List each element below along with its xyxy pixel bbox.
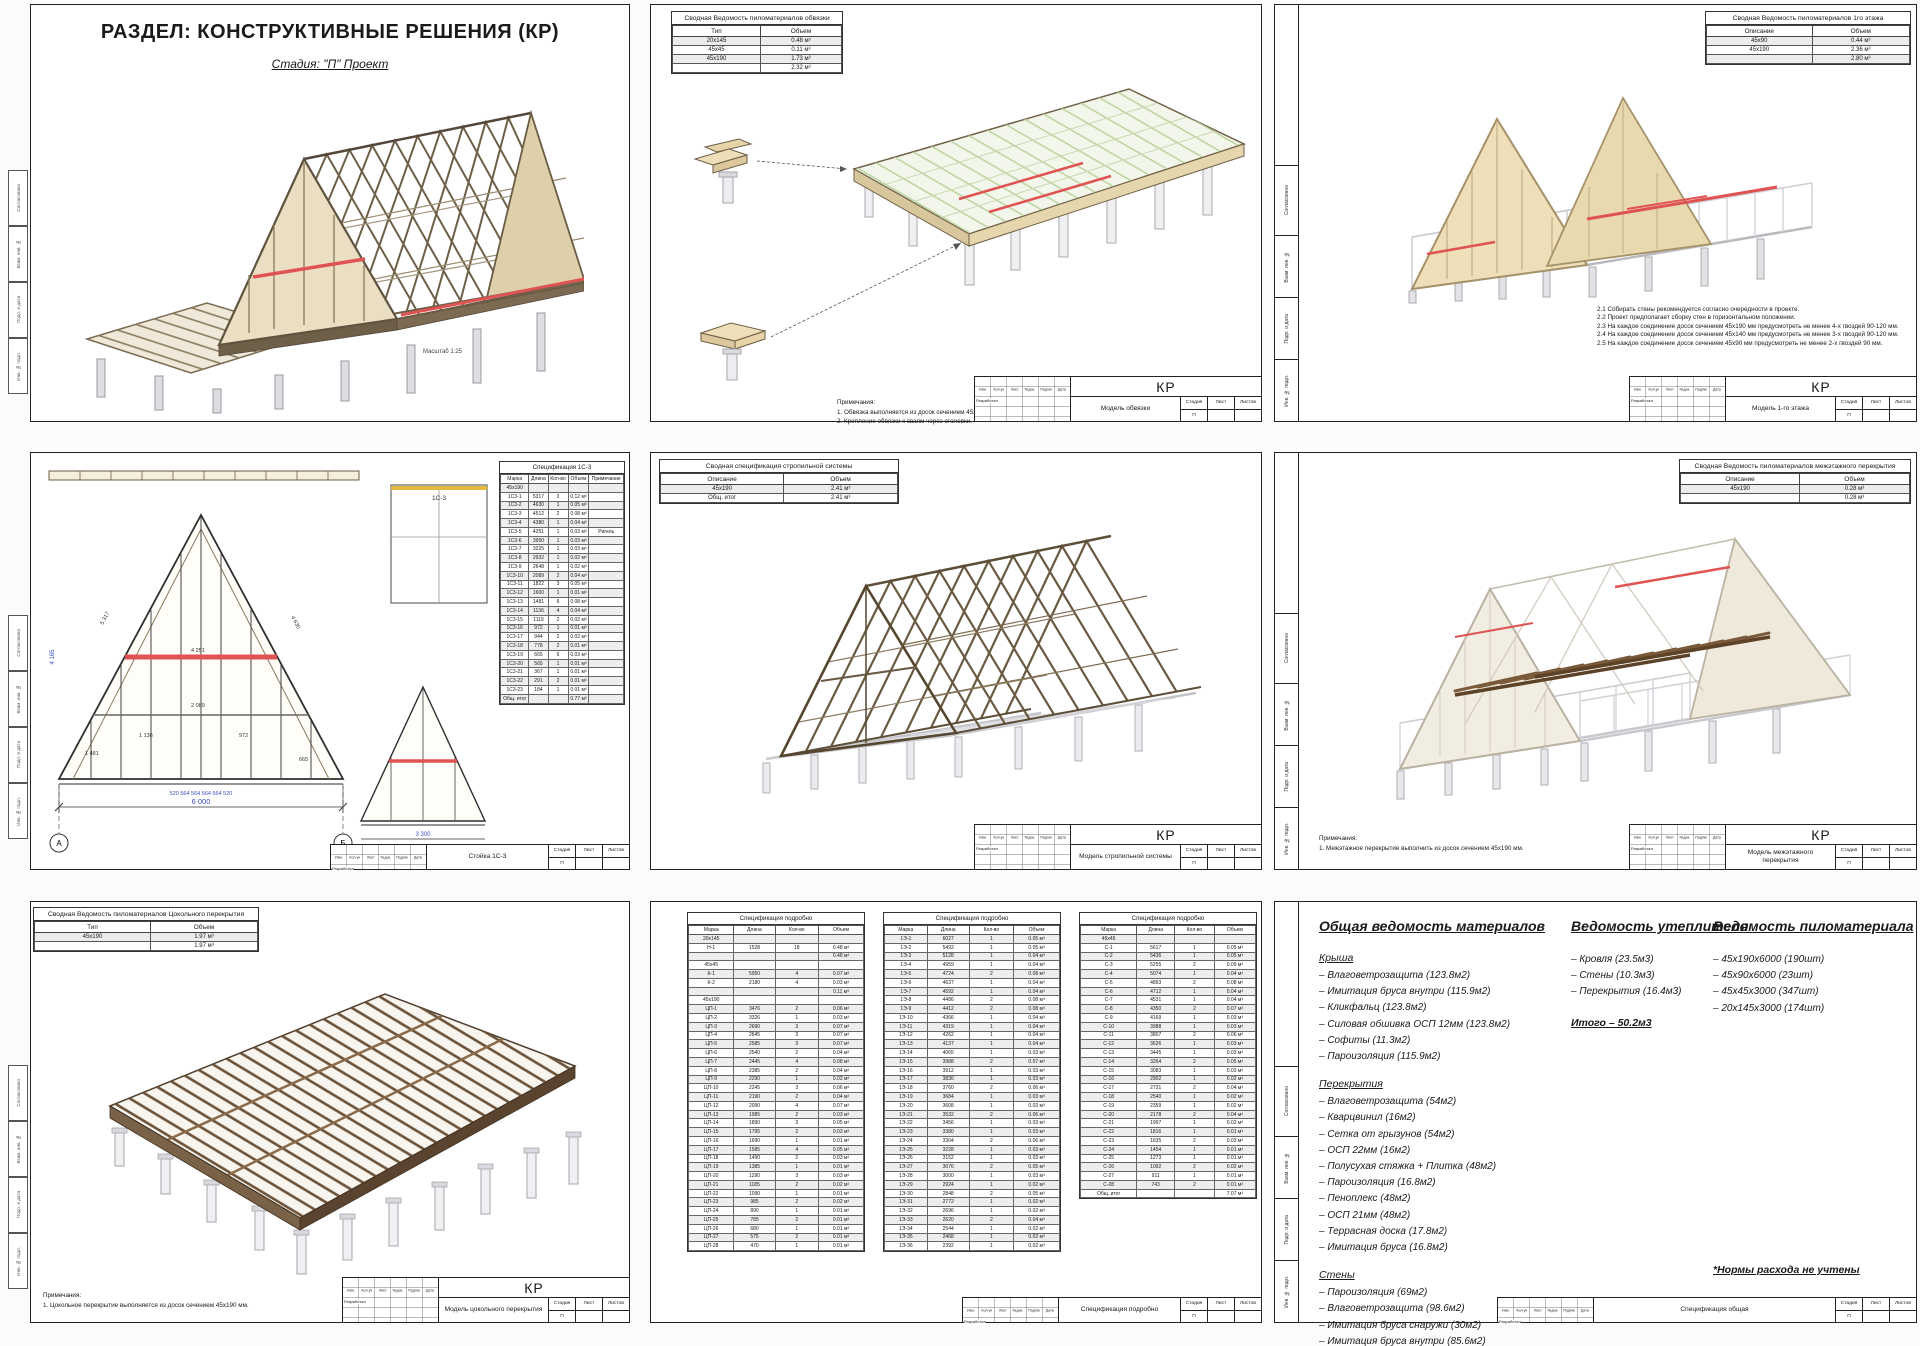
table-cell: 2: [548, 492, 568, 501]
table-cell: [1175, 935, 1215, 944]
table-cell: 45х190: [501, 484, 529, 493]
table-cell: 0.01 м³: [568, 677, 589, 686]
table-cell: [548, 694, 568, 703]
table-cell: 4366: [927, 1014, 969, 1023]
table-cell: К-1: [689, 970, 734, 979]
table-row: 1Э-3512810.04 м³: [885, 952, 1060, 961]
table-cell: ЦП-21: [689, 1180, 734, 1189]
table-cell: 0.01 м³: [568, 685, 589, 694]
doc-title: Модель межэтажного перекрытия: [1726, 845, 1836, 869]
list-item: – Влаговетрозащита (123.8м2): [1319, 968, 1567, 984]
table-cell: 1090: [734, 1189, 775, 1198]
table-cell: 0.06 м³: [1014, 1084, 1060, 1093]
table-row: 1Э-31277210.02 м³: [885, 1198, 1060, 1207]
table-cell: 4: [775, 1101, 818, 1110]
table-row: ЦП-9229010.02 м³: [689, 1075, 864, 1084]
frame-side-strip: Согласовано Взам. инв. № Подп. и дата Ин…: [8, 615, 28, 839]
table-cell: 0.02 м³: [1014, 1224, 1060, 1233]
table-cell: 2: [775, 1154, 818, 1163]
list-item: – Сетка от грызунов (54м2): [1319, 1127, 1567, 1143]
table-cell: 0.01 м³: [819, 1163, 864, 1172]
table-cell: 3: [775, 1084, 818, 1093]
table-title: Спецификация подробно: [884, 913, 1060, 925]
table-cell: 1Э-23: [885, 1128, 928, 1137]
table-cell: 0.05 м³: [819, 1145, 864, 1154]
list-item: – 45х190х6000 (190шт): [1713, 952, 1903, 968]
table-row: ЦП-2332610.03 м³: [689, 1014, 864, 1023]
table-cell: [529, 484, 548, 493]
table-cell: 0.04 м³: [1014, 1216, 1060, 1225]
table-cell: С-8: [1081, 1005, 1137, 1014]
table-cell: 0.04 м³: [1214, 1084, 1255, 1093]
table-cell: 1: [969, 1172, 1013, 1181]
table-cell: 0.08 м³: [1014, 996, 1060, 1005]
table-cell: 0.02 м³: [568, 554, 589, 563]
table-cell: 0.07 м³: [819, 970, 864, 979]
table-cell: 0.07 м³: [819, 1101, 864, 1110]
sheet-groundfloor-model: Сводная Ведомость пиломатериалов Цокольн…: [30, 901, 630, 1323]
column-header: Тип: [673, 26, 761, 37]
table-cell: 3: [775, 1119, 818, 1128]
table-cell: 1: [1175, 1066, 1215, 1075]
table-row: 20х1450.48 м³: [673, 37, 842, 46]
table-cell: [775, 952, 818, 961]
title-block-grid: Изм.Кол.учЛист №док.ПодписьДата Разработ…: [1630, 377, 1726, 421]
sheet-midfloor-model: Инв. № подл. Подп. и дата Взам. инв. № С…: [1274, 452, 1917, 870]
table-cell: ЦП-3: [689, 1022, 734, 1031]
table-title: Спецификация 1С-3: [500, 462, 624, 474]
table-cell: 0.03 м³: [819, 1154, 864, 1163]
table-cell: 0.03 м³: [568, 650, 589, 659]
table-cell: 0.02 м³: [568, 563, 589, 572]
table-cell: 1: [1175, 996, 1215, 1005]
table-row: С-2791110.01 м³: [1081, 1172, 1256, 1181]
table-cell: 4: [775, 970, 818, 979]
table-cell: 3445: [1137, 1049, 1175, 1058]
title-block-grid: Изм.Кол.учЛист №док.ПодписьДата Разработ…: [343, 1278, 439, 1322]
table-cell: 1890: [734, 1119, 775, 1128]
table-cell: [1137, 935, 1175, 944]
notes-block: Примечания: 1. Цокольное перекрытие выпо…: [43, 1292, 249, 1311]
table-row: ЦП-14189030.05 м³: [689, 1119, 864, 1128]
table-cell: 2: [775, 1110, 818, 1119]
table-cell: 1Э-22: [885, 1119, 928, 1128]
table-cell: 944: [529, 633, 548, 642]
table-cell: 1: [548, 685, 568, 694]
list-item: 2.2 Проект предполагает сборку стен в го…: [1597, 314, 1899, 322]
table-cell: ЦП-14: [689, 1119, 734, 1128]
table-cell: 0.05 м³: [1214, 1057, 1255, 1066]
table-cell: 4531: [1137, 996, 1175, 1005]
svg-text:6 000: 6 000: [192, 797, 211, 806]
column-header: Объем: [1812, 26, 1909, 37]
list-item: – ОСП 22мм (16м2): [1319, 1143, 1567, 1159]
table-cell: 4486: [927, 996, 969, 1005]
table-cell: 1: [1175, 1014, 1215, 1023]
table-cell: С-7: [1081, 996, 1137, 1005]
table-cell: 0.07 м³: [819, 1040, 864, 1049]
list-item: – Кварцвинил (16м2): [1319, 1110, 1567, 1126]
table-row: С-23163520.03 м³: [1081, 1136, 1256, 1145]
table-cell: 3152: [927, 1154, 969, 1163]
list-item: – Кликфальц (123.8м2): [1319, 1000, 1567, 1016]
table-cell: 2648: [529, 563, 548, 572]
table-row: ЦП-3269030.07 м³: [689, 1022, 864, 1031]
table-cell: 1Э-3: [885, 952, 928, 961]
table-cell: 2620: [927, 1216, 969, 1225]
rafters-3d-model: [671, 501, 1251, 831]
table-cell: 4251: [529, 527, 548, 536]
table-row: ЦП-1347620.06 м³: [689, 1005, 864, 1014]
table-cell: 1: [1175, 1172, 1215, 1181]
table-cell: 2180: [734, 978, 775, 987]
table-cell: 1: [1175, 1154, 1215, 1163]
stamp-meta: СтадияЛистЛистов П: [1836, 397, 1916, 421]
table-row: 1Э-29292410.02 м³: [885, 1180, 1060, 1189]
table-cell: 2245: [734, 1084, 775, 1093]
table-cell: С-28: [1081, 1180, 1137, 1189]
table-row: ЦП-15179520.03 м³: [689, 1128, 864, 1137]
table-cell: ЦП-20: [689, 1172, 734, 1181]
table-cell: 1690: [734, 1136, 775, 1145]
list-item: – ОСП 21мм (48м2): [1319, 1208, 1567, 1224]
table-cell: 1Э-35: [885, 1233, 928, 1242]
table-cell: 0.02 м³: [1014, 1242, 1060, 1251]
table-cell: 0.03 м³: [1214, 1014, 1255, 1023]
table-cell: 0.01 м³: [568, 589, 589, 598]
table-cell: 3225: [529, 545, 548, 554]
table-cell: 1: [969, 1049, 1013, 1058]
table-cell: 0.02 м³: [819, 1180, 864, 1189]
table-cell: [819, 935, 864, 944]
table-cell: 2: [775, 1198, 818, 1207]
table-cell: 3: [775, 1040, 818, 1049]
table-cell: 3228: [927, 1145, 969, 1154]
table-cell: ЦП-9: [689, 1075, 734, 1084]
detailed-spec-table-2: Спецификация подробно МаркаДлина Кол-воО…: [883, 912, 1061, 1252]
table-cell: 0.03 м³: [1014, 1128, 1060, 1137]
strip-label: Взам. инв. №: [16, 240, 21, 269]
table-cell: 5436: [1137, 952, 1175, 961]
table-cell: 1: [969, 1014, 1013, 1023]
doc-code: КР: [1071, 377, 1261, 397]
table-cell: 1.97 м³: [150, 933, 257, 942]
table-cell: С-14: [1081, 1057, 1137, 1066]
table-row: ЦП-6254020.04 м³: [689, 1049, 864, 1058]
section-walls: Стены: [1319, 1269, 1567, 1281]
table-cell: 1528: [734, 943, 775, 952]
table-cell: 665: [529, 650, 548, 659]
table-cell: 1816: [1137, 1128, 1175, 1137]
table-cell: 1: [969, 1075, 1013, 1084]
stamp-meta: СтадияЛистЛистов П: [549, 1298, 629, 1322]
table-cell: 1: [775, 1224, 818, 1233]
table-cell: 0.03 м³: [819, 978, 864, 987]
table-cell: 0.01 м³: [1214, 1172, 1255, 1181]
materials-header: Общая ведомость материалов: [1319, 918, 1567, 934]
table-row: 1Э-23338010.03 м³: [885, 1128, 1060, 1137]
table-cell: 1600: [529, 589, 548, 598]
table-row: Общ. итог0.77 м³: [501, 694, 624, 703]
table-cell: 2: [969, 1189, 1013, 1198]
table-cell: [734, 952, 775, 961]
table-cell: 0.08 м³: [568, 510, 589, 519]
table-cell: 2: [1175, 961, 1215, 970]
table-cell: 0.04 м³: [1014, 1022, 1060, 1031]
table-cell: [734, 996, 775, 1005]
table-cell: ЦП-27: [689, 1233, 734, 1242]
table-row: 45х45: [1081, 935, 1256, 944]
walls-3d-model: [1307, 49, 1892, 305]
table-row: ЦП-18149020.03 м³: [689, 1154, 864, 1163]
table-cell: 7.07 м³: [1214, 1189, 1255, 1198]
table-cell: 0.01 м³: [568, 659, 589, 668]
table-cell: 0.05 м³: [568, 501, 589, 510]
doc-title: Модель цокольного перекрытия: [439, 1298, 549, 1322]
table-cell: 3304: [927, 1136, 969, 1145]
stamp-meta: СтадияЛистЛистов П: [1181, 397, 1261, 421]
table-title: Спецификация подробно: [688, 913, 864, 925]
table-cell: Н-1: [689, 943, 734, 952]
table-cell: ЦП-8: [689, 1066, 734, 1075]
table-cell: 0.01 м³: [568, 624, 589, 633]
table-cell: [589, 580, 624, 589]
table-cell: 2359: [1137, 1101, 1175, 1110]
table-cell: 3: [775, 1022, 818, 1031]
title-block: Изм.Кол.учЛист №док.ПодписьДата Разработ…: [1497, 1297, 1917, 1323]
table-cell: 1795: [734, 1128, 775, 1137]
strip-label: Согласовано: [16, 184, 21, 212]
table-cell: 0.03 м³: [1014, 1093, 1060, 1102]
table-cell: 1Э-2: [885, 943, 928, 952]
table-cell: 4712: [1137, 987, 1175, 996]
table-row: 1Э-2549210.05 м³: [885, 943, 1060, 952]
table-row: С-21199710.02 м³: [1081, 1119, 1256, 1128]
title-block-grid: Изм.Кол.учЛист №док.ПодписьДата Разработ…: [975, 377, 1071, 421]
table-cell: 1: [969, 952, 1013, 961]
list-item: – Кровля (23.5м3): [1571, 952, 1711, 968]
section-roof: Крыша: [1319, 952, 1567, 964]
table-cell: Общ. итог: [1081, 1189, 1137, 1198]
table-cell: [589, 668, 624, 677]
table-cell: 1: [548, 589, 568, 598]
materials-column-lumber: Ведомость пиломатериала – 45х190х6000 (1…: [1713, 918, 1903, 1017]
table-cell: 1: [969, 1242, 1013, 1251]
table-cell: 0.07 м³: [819, 1031, 864, 1040]
table-cell: С-4: [1081, 970, 1137, 979]
table-cell: 1: [969, 1093, 1013, 1102]
table-cell: 1Э-32: [885, 1207, 928, 1216]
table-cell: 1Э-18: [885, 1084, 928, 1093]
notes-title: Примечания:: [1319, 835, 1524, 843]
table-cell: 0.02 м³: [819, 1075, 864, 1084]
table-cell: [589, 501, 624, 510]
table-cell: 5492: [927, 943, 969, 952]
table-cell: 1: [1175, 1049, 1215, 1058]
table-cell: 3608: [927, 1101, 969, 1110]
table-cell: 1С3-10: [501, 571, 529, 580]
table-row: ЦП-22109010.01 м³: [689, 1189, 864, 1198]
table-cell: 3760: [927, 1084, 969, 1093]
table-cell: 3456: [927, 1119, 969, 1128]
table-row: ЦП-2668010.01 м³: [689, 1224, 864, 1233]
table-cell: 1Э-20: [885, 1101, 928, 1110]
table-cell: [589, 659, 624, 668]
table-cell: 1: [1175, 1119, 1215, 1128]
table-cell: 778: [529, 642, 548, 651]
table-cell: 0.03 м³: [819, 1110, 864, 1119]
list-item: – Пароизоляция (16.8м2): [1319, 1175, 1567, 1191]
table-row: ЦП-20129030.03 м³: [689, 1172, 864, 1181]
table-cell: 0.08 м³: [1014, 970, 1060, 979]
table-cell: 1119: [529, 615, 548, 624]
table-row: С-25127310.01 м³: [1081, 1154, 1256, 1163]
lumber-header: Ведомость пиломатериала: [1713, 918, 1903, 934]
insulation-items: – Кровля (23.5м3)– Стены (10.3м3)– Перек…: [1571, 952, 1711, 1001]
table-cell: 1Э-13: [885, 1040, 928, 1049]
table-cell: 2696: [927, 1207, 969, 1216]
table-cell: 972: [529, 624, 548, 633]
table-cell: 0.02 м³: [1214, 1075, 1255, 1084]
frame-side-strip: Инв. № подл. Подп. и дата Взам. инв. № С…: [1275, 902, 1299, 1322]
table-cell: 5317: [529, 492, 548, 501]
table-cell: 0.01 м³: [568, 642, 589, 651]
notes-block: Примечания: 1. Межэтажное перекрытие вып…: [1319, 835, 1524, 854]
table-cell: С-18: [1081, 1093, 1137, 1102]
table-cell: 1Э-14: [885, 1049, 928, 1058]
table-cell: 1: [775, 1014, 818, 1023]
spec-table: МаркаДлина Кол-воОбъем 1Э-1602710.05 м³1…: [884, 925, 1060, 1251]
table-cell: 0.05 м³: [1214, 952, 1255, 961]
table-cell: 3: [548, 580, 568, 589]
table-row: С-22181610.01 м³: [1081, 1128, 1256, 1137]
table-row: 45х190: [501, 484, 624, 493]
table-row: 1Э-16391210.03 м³: [885, 1066, 1060, 1075]
table-cell: 0.02 м³: [1214, 1163, 1255, 1172]
table-cell: 2385: [734, 1066, 775, 1075]
table-row: ЦП-2578520.01 м³: [689, 1216, 864, 1225]
rafters-summary-table: Сводная спецификация стропильной системы…: [659, 459, 899, 504]
table-row: 1Э-36239210.02 м³: [885, 1242, 1060, 1251]
table-cell: 4169: [1137, 1014, 1175, 1023]
table-cell: С-12: [1081, 1040, 1137, 1049]
table-cell: К-2: [689, 978, 734, 987]
table-cell: 1: [548, 501, 568, 510]
table-row: 1С3-2229120.01 м³: [501, 677, 624, 686]
stage-subtitle: Стадия: "П" Проект: [31, 57, 629, 71]
table-cell: [775, 987, 818, 996]
table-row: 1С3-5425110.03 м³Ригель: [501, 527, 624, 536]
table-row: 1Э-10436610.04 м³: [885, 1014, 1060, 1023]
table-cell: 4380: [529, 519, 548, 528]
table-row: Общ. итог7.07 м³: [1081, 1189, 1256, 1198]
summary-table: Описание Объем 45х1902.41 м³Общ. итог2.4…: [660, 473, 898, 503]
table-row: ЦП-21118520.02 м³: [689, 1180, 864, 1189]
table-cell: 1: [548, 554, 568, 563]
table-cell: 1С3-19: [501, 650, 529, 659]
column-header: Объем: [760, 26, 841, 37]
table-row: ЦП-5258530.07 м³: [689, 1040, 864, 1049]
table-cell: 3476: [734, 1005, 775, 1014]
table-row: С-9416910.03 м³: [1081, 1014, 1256, 1023]
doc-code: КР: [1726, 377, 1916, 397]
table-cell: С-23: [1081, 1136, 1137, 1145]
table-cell: С-17: [1081, 1084, 1137, 1093]
table-cell: С-26: [1081, 1163, 1137, 1172]
table-cell: 1: [548, 659, 568, 668]
table-cell: 1С3-7: [501, 545, 529, 554]
table-row: 1Э-19368410.03 м³: [885, 1093, 1060, 1102]
table-row: 1С3-1877820.01 м³: [501, 642, 624, 651]
table-cell: 1: [1175, 970, 1215, 979]
table-cell: 2: [969, 996, 1013, 1005]
table-cell: 1: [548, 519, 568, 528]
table-row: 1Э-32269610.02 м³: [885, 1207, 1060, 1216]
title-block: Изм.Кол.учЛист №док.ПодписьДата Разработ…: [962, 1297, 1262, 1323]
table-cell: 4: [775, 1057, 818, 1066]
table-cell: 0.01 м³: [1214, 1180, 1255, 1189]
table-cell: 1Э-25: [885, 1145, 928, 1154]
table-cell: 0.04 м³: [1014, 1031, 1060, 1040]
table-cell: 1: [969, 943, 1013, 952]
table-cell: 0.02 м³: [1014, 1207, 1060, 1216]
truss-elevation-drawing: 1С-3 5 317 4 630: [43, 463, 493, 863]
table-row: ЦП-2489010.01 м³: [689, 1207, 864, 1216]
list-item: – Пеноплекс (48м2): [1319, 1191, 1567, 1207]
table-row: 1Э-24330420.06 м³: [885, 1136, 1060, 1145]
table-row: 1С3-15111920.02 м³: [501, 615, 624, 624]
table-cell: 1: [1175, 1022, 1215, 1031]
table-cell: 3076: [927, 1163, 969, 1172]
table-cell: [1175, 1189, 1215, 1198]
stamp-meta: СтадияЛистЛистов П: [1181, 1298, 1261, 1322]
table-cell: [589, 694, 624, 703]
table-cell: 1Э-28: [885, 1172, 928, 1181]
table-row: 1С3-6395010.03 м³: [501, 536, 624, 545]
table-cell: 2772: [927, 1198, 969, 1207]
table-cell: 6: [548, 598, 568, 607]
table-row: 1Э-1602710.05 м³: [885, 935, 1060, 944]
table-cell: 2089: [529, 571, 548, 580]
table-cell: 0.01 м³: [819, 1207, 864, 1216]
truss-spec-table: Спецификация 1С-3 МаркаДлинаКол-во Объем…: [499, 461, 625, 705]
table-cell: 1: [1175, 952, 1215, 961]
table-cell: 2: [969, 1136, 1013, 1145]
table-cell: [689, 987, 734, 996]
table-cell: 2: [548, 510, 568, 519]
title-block: Изм.Кол.учЛист №док.ПодписьДата Разработ…: [342, 1277, 630, 1323]
table-cell: 2392: [927, 1242, 969, 1251]
table-cell: 3684: [927, 1093, 969, 1102]
table-row: 1С3-13148160.08 м³: [501, 598, 624, 607]
table-row: 1Э-15398820.07 м³: [885, 1057, 1060, 1066]
list-item: – Силовая обшивка ОСП 12мм (123.8м2): [1319, 1017, 1567, 1033]
doc-code: КР: [1726, 825, 1916, 845]
table-cell: 2: [548, 677, 568, 686]
table-cell: ЦП-18: [689, 1154, 734, 1163]
table-cell: 4959: [927, 961, 969, 970]
table-cell: [589, 633, 624, 642]
table-title: Сводная Ведомость пиломатериалов обвязки: [672, 12, 842, 25]
table-cell: [1214, 935, 1255, 944]
table-cell: 1Э-29: [885, 1180, 928, 1189]
table-row: ЦП-7244540.08 м³: [689, 1057, 864, 1066]
list-item: – Имитация бруса внутри (85.6м2): [1319, 1334, 1567, 1346]
table-cell: С-5: [1081, 978, 1137, 987]
table-cell: 2: [969, 1163, 1013, 1172]
table-cell: ЦП-28: [689, 1242, 734, 1251]
table-cell: ЦП-10: [689, 1084, 734, 1093]
